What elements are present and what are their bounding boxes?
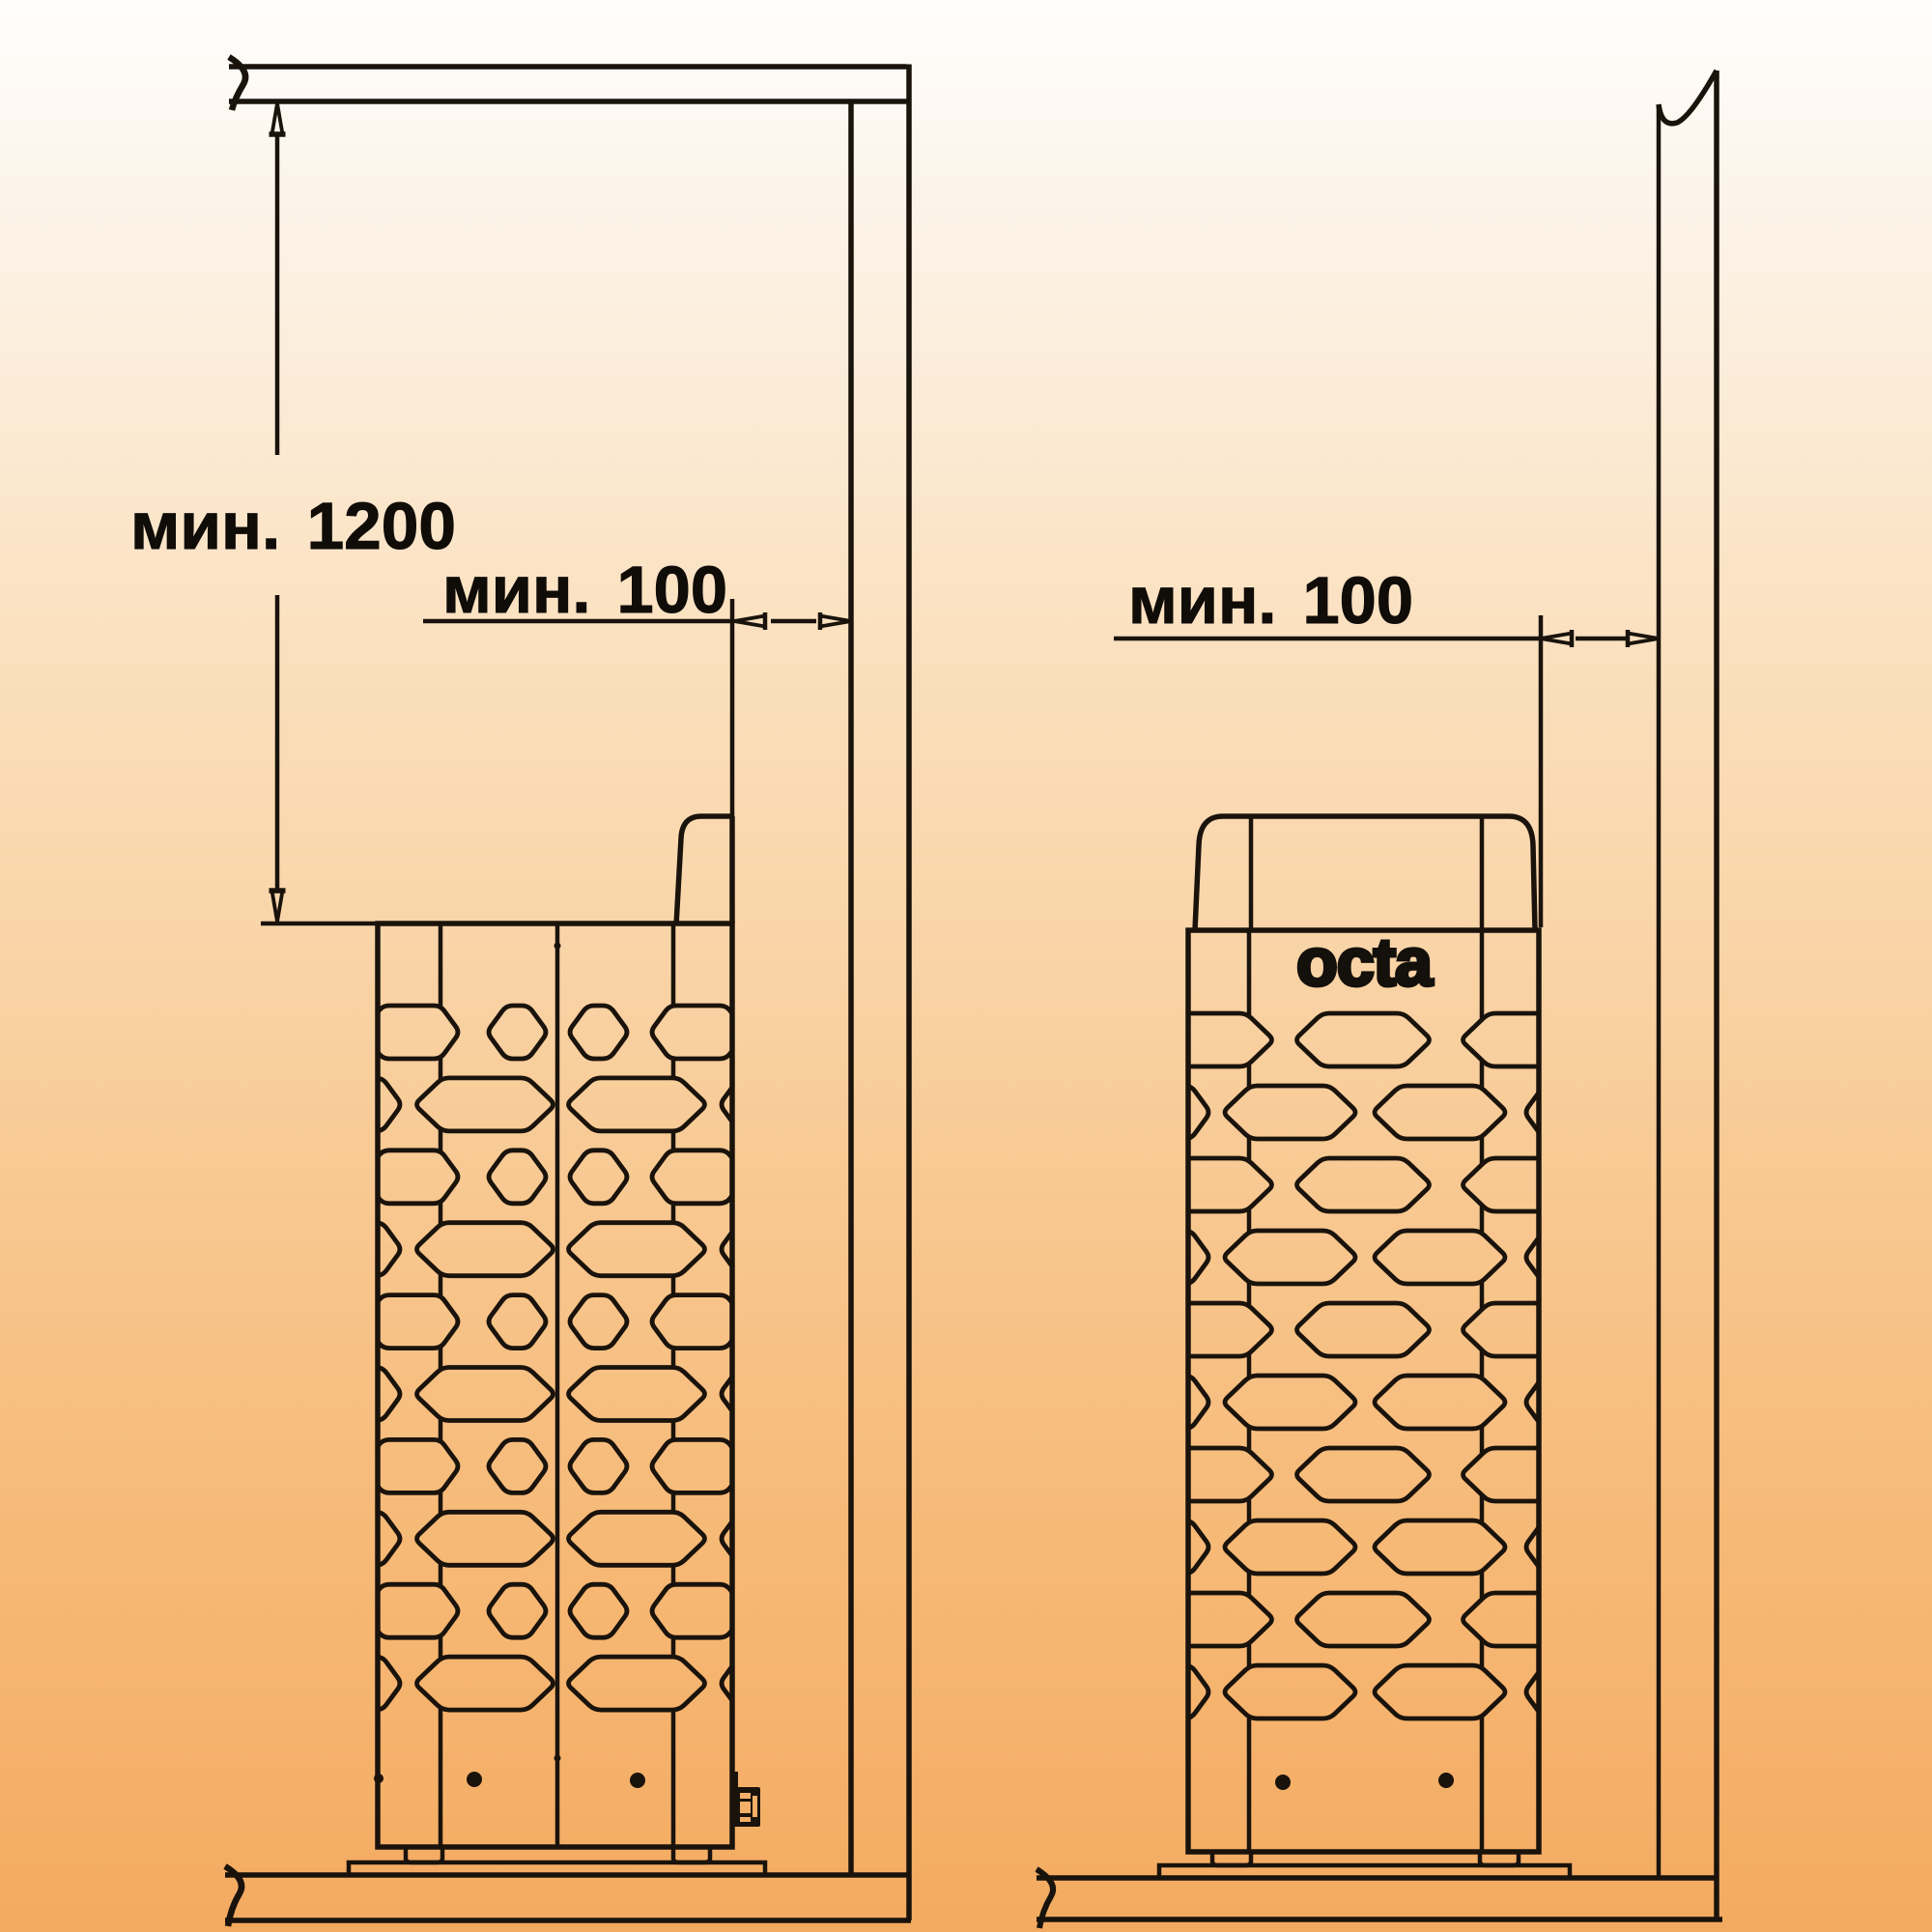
svg-text:мин. 100: мин. 100 xyxy=(442,553,727,627)
svg-text:мин. 100: мин. 100 xyxy=(1128,563,1413,638)
svg-text:мин. 1200: мин. 1200 xyxy=(130,489,456,563)
svg-text:octa: octa xyxy=(1296,924,1434,1000)
